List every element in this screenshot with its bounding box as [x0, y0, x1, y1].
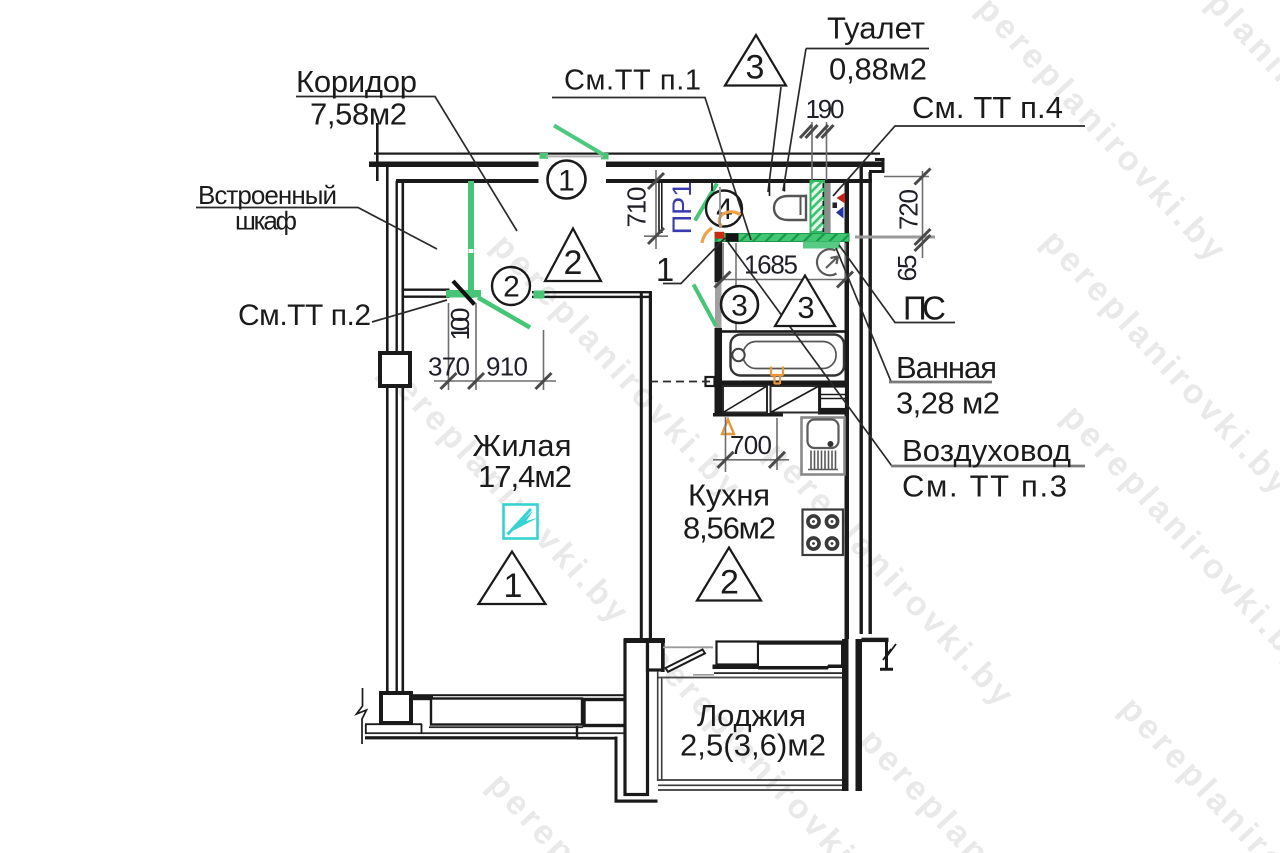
svg-text:См.ТТ п.2: См.ТТ п.2 — [238, 299, 371, 332]
svg-text:2: 2 — [720, 564, 739, 602]
svg-text:3,28 м2: 3,28 м2 — [896, 386, 1000, 421]
svg-text:17,4м2: 17,4м2 — [478, 459, 572, 494]
svg-text:См.ТТ п.1: См.ТТ п.1 — [564, 65, 701, 97]
svg-text:2: 2 — [503, 271, 520, 304]
svg-text:1: 1 — [504, 567, 523, 605]
svg-text:2: 2 — [564, 244, 583, 282]
svg-text:ПС: ПС — [903, 290, 946, 327]
svg-text:3: 3 — [731, 290, 748, 323]
svg-text:100: 100 — [445, 308, 475, 341]
svg-text:См. ТТ п.3: См. ТТ п.3 — [902, 469, 1067, 504]
svg-text:Ванная: Ванная — [896, 350, 997, 385]
svg-text:ПР1: ПР1 — [667, 182, 697, 234]
svg-text:65: 65 — [892, 255, 922, 282]
svg-text:7,58м2: 7,58м2 — [310, 97, 407, 132]
svg-text:710: 710 — [622, 187, 652, 228]
svg-text:910: 910 — [486, 352, 528, 382]
svg-text:Туалет: Туалет — [827, 11, 925, 46]
svg-text:3: 3 — [797, 290, 814, 325]
svg-text:Воздуховод: Воздуховод — [902, 433, 1071, 468]
svg-text:8,56м2: 8,56м2 — [683, 511, 776, 546]
svg-text:1: 1 — [558, 165, 575, 198]
svg-text:Жилая: Жилая — [473, 428, 572, 463]
svg-text:1: 1 — [656, 251, 674, 288]
svg-text:шкаф: шкаф — [235, 206, 297, 236]
svg-text:2,5(3,6)м2: 2,5(3,6)м2 — [680, 728, 826, 763]
svg-text:720: 720 — [894, 189, 924, 230]
svg-text:См. ТТ п.4: См. ТТ п.4 — [912, 90, 1063, 125]
svg-text:Кухня: Кухня — [688, 478, 770, 513]
svg-text:370: 370 — [428, 352, 470, 382]
svg-text:3: 3 — [746, 49, 765, 87]
svg-text:Коридор: Коридор — [296, 64, 417, 99]
svg-text:700: 700 — [730, 430, 772, 460]
svg-text:190: 190 — [806, 94, 845, 124]
svg-text:0,88м2: 0,88м2 — [829, 52, 927, 87]
